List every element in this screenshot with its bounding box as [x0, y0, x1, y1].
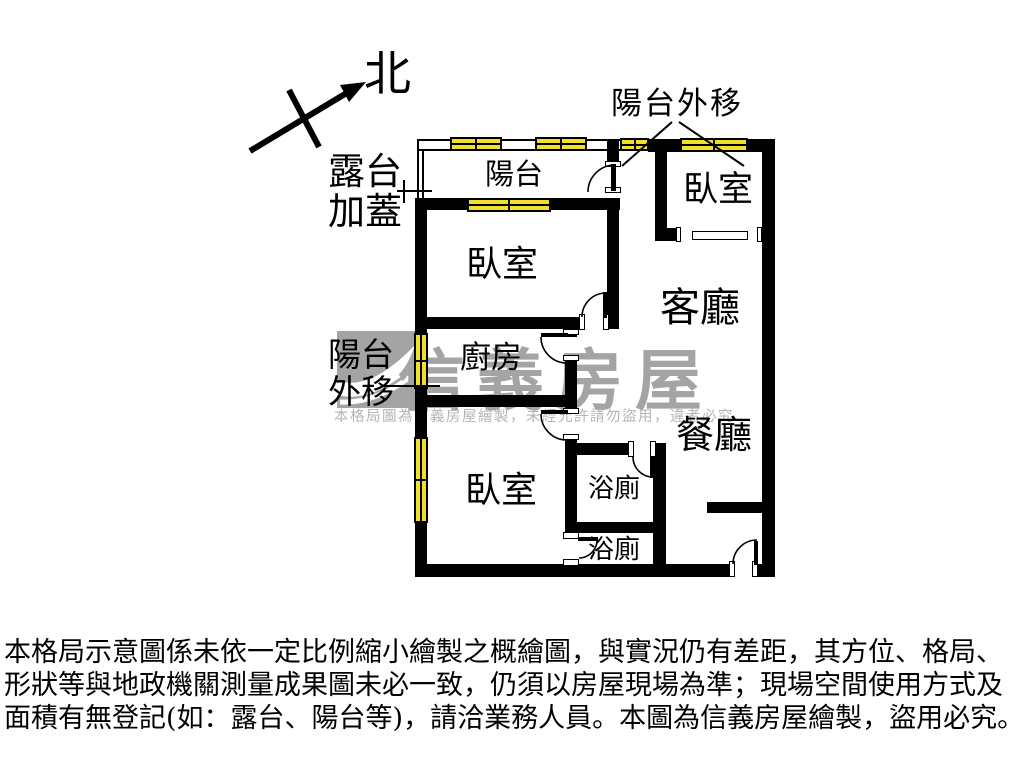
annotation-balcony-extended-left-line2: 外移 [328, 374, 394, 410]
room-label-bedroom-lower: 臥室 [465, 472, 537, 511]
plan-linework-layer [0, 0, 1024, 620]
door-arc-balcony [588, 165, 615, 192]
door-arc-entrance [733, 540, 757, 564]
annotation-terrace-line1: 露台 [328, 152, 402, 192]
annotation-balcony-extended-left-line1: 陽台 [328, 337, 394, 373]
leader-balcony-top-left [622, 122, 672, 166]
room-label-balcony: 陽台 [485, 159, 543, 190]
room-label-bathroom-lower: 浴廁 [588, 536, 640, 564]
door-arc-bedroom1 [582, 293, 606, 317]
room-label-bedroom-top-right: 臥室 [683, 172, 753, 210]
disclaimer-line-3: 面積有無登記(如：露台、陽台等)，請洽業務人員。本圖為信義房屋繪製，盜用必究。 [4, 696, 1024, 735]
north-arrow-head [340, 82, 366, 102]
north-arrow-shaft [250, 91, 350, 151]
room-label-kitchen: 廚房 [460, 342, 522, 375]
annotation-terrace-line2: 加蓋 [328, 192, 402, 232]
door-arc-bedroom2 [541, 414, 567, 440]
room-label-dining: 餐廳 [676, 415, 752, 456]
leader-balcony-top-right [679, 122, 744, 166]
room-label-living: 客廳 [660, 287, 740, 330]
room-label-bathroom-upper: 浴廁 [588, 475, 640, 503]
door-arc-kitchen [541, 337, 567, 363]
floor-plan-page: 信義房屋 本格局圖為信義房屋繪製，未經允許請勿盜用，違者必究 [0, 0, 1024, 768]
annotation-balcony-extended-top: 陽台外移 [611, 88, 743, 121]
north-arrow-cross [289, 90, 319, 147]
north-label: 北 [364, 50, 411, 101]
room-label-bedroom-main: 臥室 [466, 246, 538, 285]
